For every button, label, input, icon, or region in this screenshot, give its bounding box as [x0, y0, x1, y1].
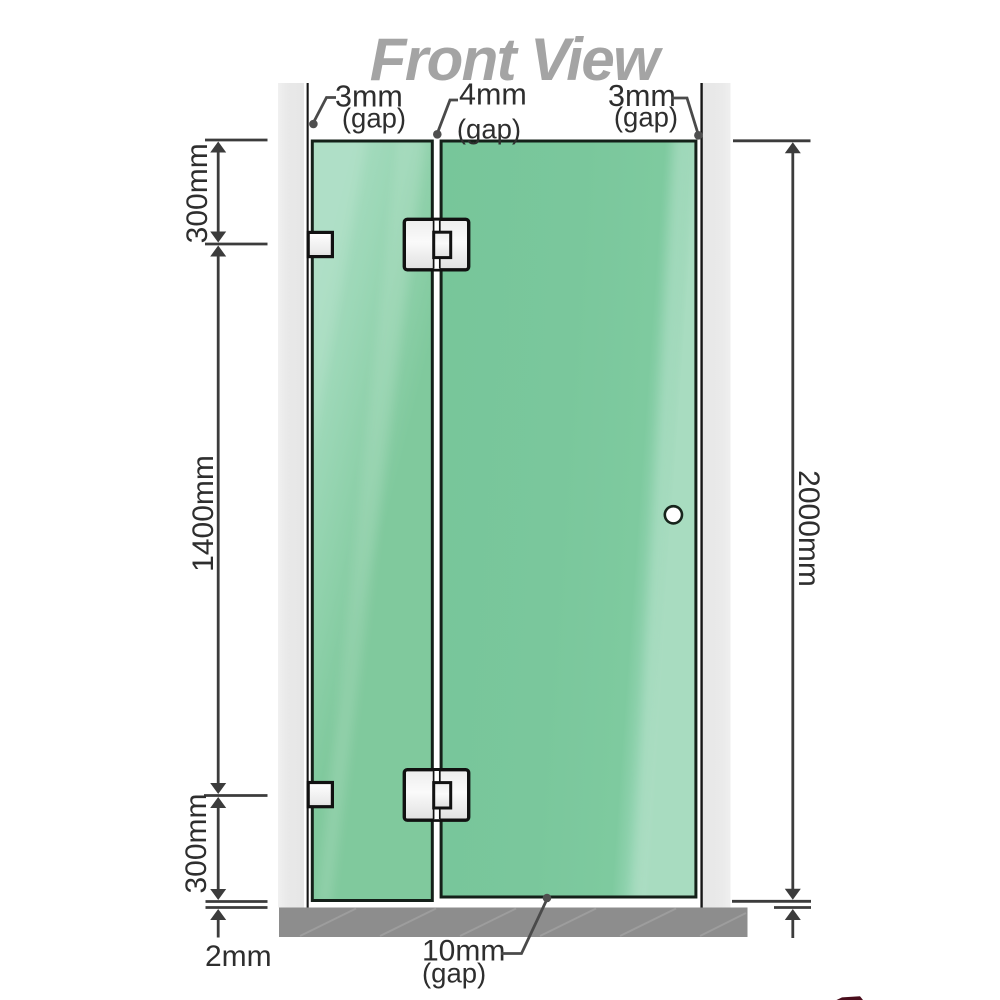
- svg-text:4mm: 4mm: [459, 78, 527, 112]
- svg-text:(gap): (gap): [614, 102, 678, 133]
- svg-text:2000mm: 2000mm: [792, 470, 825, 587]
- svg-text:300mm: 300mm: [180, 793, 213, 893]
- svg-text:(gap): (gap): [457, 114, 521, 145]
- svg-text:(gap): (gap): [422, 958, 486, 989]
- svg-text:1400mm: 1400mm: [187, 455, 220, 572]
- svg-text:(gap): (gap): [342, 103, 406, 134]
- svg-text:300mm: 300mm: [181, 143, 214, 243]
- svg-text:2mm: 2mm: [205, 940, 272, 973]
